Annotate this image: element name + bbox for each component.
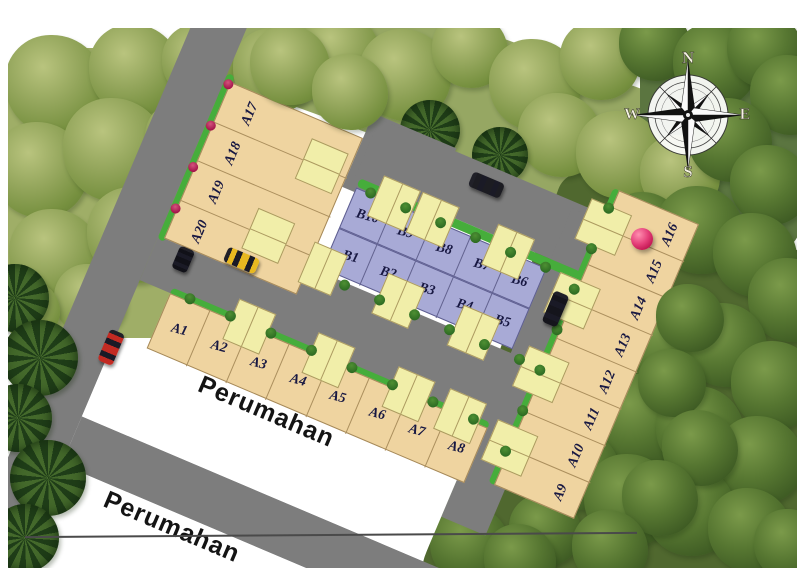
- compass-e: E: [740, 106, 751, 123]
- compass-s: S: [683, 162, 692, 181]
- house-split-line: [390, 281, 407, 320]
- page-margin-left: [0, 0, 8, 568]
- tree-icon: [638, 349, 706, 417]
- page-margin-top: [0, 0, 804, 28]
- house-split-line: [584, 219, 623, 236]
- compass-w: W: [624, 106, 640, 123]
- house-split-line: [304, 159, 339, 175]
- house-split-line: [250, 228, 285, 244]
- site-plan: PerumahanPerumahanA17A18A19A20B10B9B8B7B…: [0, 0, 804, 568]
- compass-n: N: [682, 48, 695, 67]
- house-split-line: [241, 307, 258, 346]
- tree-icon: [656, 284, 724, 352]
- house-split-line: [400, 375, 417, 414]
- page-margin-right: [797, 0, 804, 568]
- house-split-line: [452, 397, 469, 436]
- lot-marker-pin[interactable]: [631, 228, 653, 250]
- tree-icon: [312, 54, 388, 130]
- house-split-line: [315, 249, 332, 288]
- house-split-line: [320, 341, 337, 380]
- compass-rose: N E S W: [603, 30, 773, 200]
